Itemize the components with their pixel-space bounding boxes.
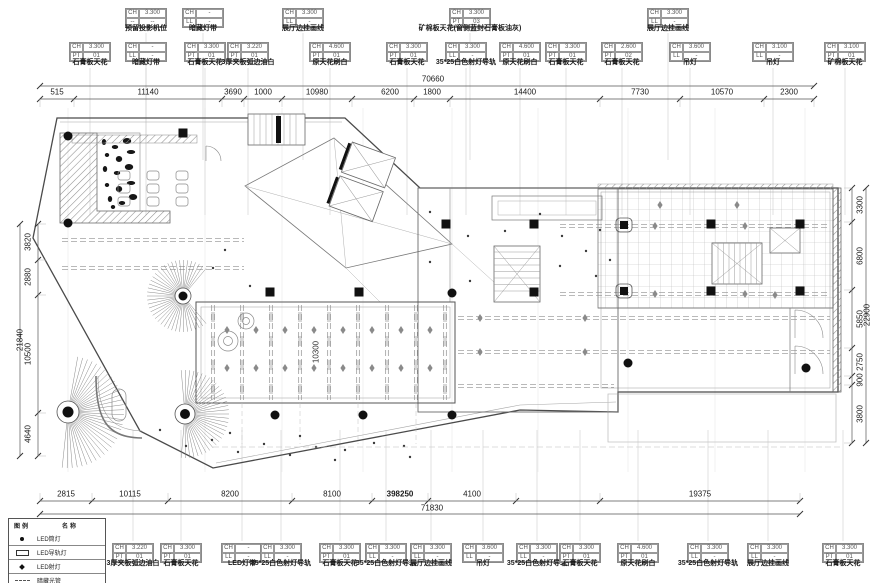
tag-cell: CH <box>748 544 761 553</box>
tag-cell: 3.300 <box>424 544 451 553</box>
tag-cell: CH <box>618 544 631 553</box>
dimension-value: 900 <box>856 373 865 386</box>
tag-cell: LL <box>670 52 683 61</box>
tag-cell: CH <box>823 544 836 553</box>
legend-header-symbol: 图例 <box>9 519 35 532</box>
spot-symbol-icon <box>19 564 25 570</box>
hall-dimension: 10300 <box>312 341 321 363</box>
ceiling-tag: CH3.300LL-35*25白色射灯导轨 <box>445 42 487 62</box>
dimension-value: 6800 <box>856 247 865 265</box>
legend-table: 图例 名称 LED筒灯LED导轨灯LED射灯暗藏光管空调送风口(以机电图纸为准)… <box>8 518 106 583</box>
tag-cell: 3.220 <box>241 43 268 52</box>
ceiling-tag: CH3.300----预留投影机位 <box>125 8 167 28</box>
dimension-value: 10980 <box>306 88 328 97</box>
ceiling-tag: CH3.300LL-展厅边挂画线 <box>747 543 789 563</box>
tag-cell: 3.300 <box>333 544 360 553</box>
tag-label: 石膏板天花 <box>605 59 640 66</box>
ceiling-plan-sheet: CH3.300----预留投影机位CH-LL-暗藏灯带CH3.300LL-展厅边… <box>0 0 878 583</box>
ceiling-tag: CH3.300PT01石膏板天花 <box>69 42 111 62</box>
ceiling-tag: CH-LL-暗藏灯带 <box>125 42 167 62</box>
ceiling-tag: CH3.300LL-35*25白色射灯导轨 <box>260 543 302 563</box>
tag-cell: CH <box>310 43 323 52</box>
tag-cell: CH <box>825 43 838 52</box>
tag-cell: CH <box>70 43 83 52</box>
dimension-value: 10500 <box>24 343 33 365</box>
tag-label: 原天花刷白 <box>313 59 348 66</box>
circle-ceiling-features <box>218 313 254 351</box>
tag-cell: CH <box>185 43 198 52</box>
tag-label: 3厚夹板弧边油白 <box>222 59 275 66</box>
tag-cell: CH <box>222 544 235 553</box>
dimension-value: 3690 <box>224 88 242 97</box>
ceiling-tag: CH3.300PT01石膏板天花 <box>559 543 601 563</box>
dimension-value: 4640 <box>24 425 33 443</box>
tag-cell: CH <box>546 43 559 52</box>
dimension-value: 2880 <box>24 268 33 286</box>
ceiling-tag: CH3.300PT01石膏板天花 <box>386 42 428 62</box>
tag-cell: 3.300 <box>139 9 166 18</box>
tag-cell: LL <box>463 553 476 562</box>
tag-cell: - <box>139 43 166 52</box>
tag-label: 石膏板天花 <box>73 59 108 66</box>
tag-label: 矿棉板天花 <box>828 59 863 66</box>
dim-total-right: 22900 <box>863 304 872 326</box>
tag-cell: 3.300 <box>400 43 427 52</box>
tag-label: 吊灯 <box>476 560 490 567</box>
tag-cell: CH <box>161 544 174 553</box>
tag-cell: 3.600 <box>476 544 503 553</box>
tag-cell: CH <box>261 544 274 553</box>
dimension-value: 8100 <box>323 490 341 499</box>
tag-cell: CH <box>126 9 139 18</box>
tag-cell: 3.300 <box>198 43 225 52</box>
mid-room-partitions <box>418 188 455 302</box>
tag-cell: 3.600 <box>683 43 710 52</box>
curtain-wall-band <box>72 135 197 143</box>
tag-label: 35*25白色射灯导轨 <box>436 59 496 66</box>
tag-cell: 3.300 <box>661 9 688 18</box>
tag-cell: LL <box>753 52 766 61</box>
ceiling-tag: CH4.600PT01原天花刷白 <box>499 42 541 62</box>
ceiling-tag: CH-LL-暗藏灯带 <box>182 8 224 28</box>
tag-cell: 3.300 <box>530 544 557 553</box>
light-cove-inner <box>498 201 596 215</box>
tag-cell: CH <box>446 43 459 52</box>
tag-cell: CH <box>450 9 463 18</box>
tag-cell: CH <box>688 544 701 553</box>
dimension-value: 14400 <box>514 88 536 97</box>
dim-total-bottom: 71830 <box>421 504 443 513</box>
ceiling-tag: CH3.220PT013厚夹板弧边油白 <box>112 543 154 563</box>
right-wing-partitions <box>598 308 833 392</box>
dimension-value: 515 <box>50 88 63 97</box>
tag-cell: 3.300 <box>274 544 301 553</box>
dimension-value: 1000 <box>254 88 272 97</box>
dot-symbol-icon <box>20 537 24 541</box>
tag-cell: CH <box>320 544 333 553</box>
dimension-value: 2300 <box>780 88 798 97</box>
legend-name: LED导轨灯 <box>35 546 105 559</box>
dimension-value: 8200 <box>221 490 239 499</box>
legend-header-name: 名称 <box>35 519 105 532</box>
tag-label: 展厅边挂画线 <box>647 25 689 32</box>
tag-cell: 2.600 <box>615 43 642 52</box>
ceiling-tag: CH3.300LL-展厅边挂画线 <box>647 8 689 28</box>
tag-cell: CH <box>387 43 400 52</box>
tag-label: 展厅边挂画线 <box>747 560 789 567</box>
dimension-value: 3300 <box>856 196 865 214</box>
tag-cell: - <box>235 544 262 553</box>
tag-label: 矿棉板天花(窗侧蓝封石膏板油灰) <box>419 25 522 32</box>
tag-cell: 3.300 <box>296 9 323 18</box>
legend-header: 图例 名称 <box>9 519 105 532</box>
tag-cell: CH <box>113 544 126 553</box>
tag-label: 3厚夹板弧边油白 <box>107 560 160 567</box>
tag-cell: CH <box>602 43 615 52</box>
tag-cell: 3.300 <box>174 544 201 553</box>
tag-label: 石膏板天花 <box>188 59 223 66</box>
track-symbol-icon <box>16 550 29 556</box>
tag-cell: 3.300 <box>836 544 863 553</box>
legend-row: LED筒灯 <box>9 532 105 545</box>
tag-label: 预留投影机位 <box>125 25 167 32</box>
tag-cell: - <box>196 9 223 18</box>
tag-label: 吊灯 <box>766 59 780 66</box>
ceiling-tag: CH3.100PT01矿棉板天花 <box>824 42 866 62</box>
tag-cell: 3.300 <box>559 43 586 52</box>
legend-row: 暗藏光管 <box>9 573 105 583</box>
ceiling-tag: CH3.600LL-吊灯 <box>669 42 711 62</box>
tag-cell: 4.600 <box>323 43 350 52</box>
light-cove <box>492 196 602 220</box>
terrace-outline <box>608 394 836 442</box>
ceiling-tag: CH3.300PT01石膏板天花 <box>545 42 587 62</box>
tag-cell: 4.600 <box>513 43 540 52</box>
tag-label: 暗藏灯带 <box>132 59 160 66</box>
tag-label: 石膏板天花 <box>323 560 358 567</box>
tag-label: 35*25白色射灯导轨 <box>251 560 311 567</box>
dimension-value: 3800 <box>856 405 865 423</box>
tag-cell: 3.300 <box>573 544 600 553</box>
dimension-value: 398250 <box>387 490 414 499</box>
tag-label: 35*25白色射灯导轨 <box>678 560 738 567</box>
plant-symbols <box>102 138 137 209</box>
tag-cell: 3.300 <box>459 43 486 52</box>
dimension-value: 11140 <box>137 88 158 97</box>
tag-cell: 3.300 <box>761 544 788 553</box>
right-wall-hatch <box>833 188 841 392</box>
tag-label: 暗藏灯带 <box>189 25 217 32</box>
ceiling-tag: CH3.300PT01石膏板天花 <box>319 543 361 563</box>
ceiling-tag: CH3.300LL-展厅边挂画线 <box>410 543 452 563</box>
dimension-value: 19375 <box>689 490 711 499</box>
ceiling-tag: CH3.220PT013厚夹板弧边油白 <box>227 42 269 62</box>
tag-cell: CH <box>411 544 424 553</box>
tag-cell: 3.220 <box>126 544 153 553</box>
tag-cell: CH <box>500 43 513 52</box>
ceiling-tag: CH3.300LL-35*25白色射灯导轨 <box>687 543 729 563</box>
dimension-value: 10570 <box>711 88 733 97</box>
top-wall-hatch <box>598 184 833 189</box>
legend-row: LED导轨灯 <box>9 545 105 559</box>
tag-cell: 3.300 <box>83 43 110 52</box>
tag-label: 展厅边挂画线 <box>410 560 452 567</box>
entry-door-arc <box>206 146 221 161</box>
legend-name: LED射灯 <box>35 560 105 573</box>
tag-cell: CH <box>753 43 766 52</box>
tag-label: 展厅边挂画线 <box>282 25 324 32</box>
ceiling-tag: CH3.300LL-35*25白色射灯导轨 <box>516 543 558 563</box>
tag-cell: 3.300 <box>701 544 728 553</box>
tag-label: 石膏板天花 <box>164 560 199 567</box>
ceiling-tag: CH3.300PT01石膏板天花 <box>160 543 202 563</box>
tag-cell: 3.300 <box>463 9 490 18</box>
dimension-value: 2750 <box>856 353 865 371</box>
tag-cell: CH <box>183 9 196 18</box>
ceiling-tag: CH3.100LL-吊灯 <box>752 42 794 62</box>
dimension-value: 7730 <box>631 88 649 97</box>
tag-label: 原天花刷白 <box>621 560 656 567</box>
tag-label: 石膏板天花 <box>563 560 598 567</box>
ceiling-tag: CH2.600PT02石膏板天花 <box>601 42 643 62</box>
dimension-value: 4100 <box>463 490 481 499</box>
furniture-seats <box>118 171 188 206</box>
tag-cell: CH <box>648 9 661 18</box>
tag-cell: CH <box>126 43 139 52</box>
legend-name: 暗藏光管 <box>35 574 105 583</box>
dimension-value: 6200 <box>381 88 399 97</box>
tag-cell: CH <box>283 9 296 18</box>
ceiling-tag: CH4.600PT01原天花刷白 <box>617 543 659 563</box>
legend-name: LED筒灯 <box>35 532 105 545</box>
dimension-value: 2815 <box>57 490 75 499</box>
elevator-core <box>327 141 395 221</box>
dash-symbol-icon <box>15 580 30 581</box>
tag-cell: 4.600 <box>631 544 658 553</box>
tag-label: 吊灯 <box>683 59 697 66</box>
dimension-value: 1800 <box>423 88 441 97</box>
ceiling-tag: CH3.600LL-吊灯 <box>462 543 504 563</box>
ceiling-tag: CH3.300PT01石膏板天花 <box>822 543 864 563</box>
tag-cell: 3.100 <box>766 43 793 52</box>
stair-wall <box>276 116 281 143</box>
tag-cell: CH <box>366 544 379 553</box>
ceiling-tag: CH3.300PT01石膏板天花 <box>184 42 226 62</box>
ceiling-tag: CH4.600PT01原天花刷白 <box>309 42 351 62</box>
tag-label: 石膏板天花 <box>390 59 425 66</box>
legend-row: LED射灯 <box>9 559 105 573</box>
tag-label: 石膏板天花 <box>549 59 584 66</box>
dim-total-left: 21840 <box>16 329 25 351</box>
dimension-value: 10115 <box>119 490 141 499</box>
dim-total-top: 70660 <box>422 75 444 84</box>
tag-cell: CH <box>670 43 683 52</box>
tag-cell: CH <box>560 544 573 553</box>
tag-cell: CH <box>517 544 530 553</box>
fan-ceiling-features <box>57 260 229 468</box>
tag-cell: CH <box>228 43 241 52</box>
tag-label: 35*25白色射灯导轨 <box>356 560 416 567</box>
tag-cell: 3.300 <box>379 544 406 553</box>
tag-label: 石膏板天花 <box>826 560 861 567</box>
dimension-value: 3820 <box>24 233 33 251</box>
tag-cell: CH <box>463 544 476 553</box>
ceiling-tag: CH3.300LL-35*25白色射灯导轨 <box>365 543 407 563</box>
ceiling-tag: CH3.300PT03矿棉板天花(窗侧蓝封石膏板油灰) <box>449 8 491 28</box>
tag-label: 原天花刷白 <box>503 59 538 66</box>
tag-cell: 3.100 <box>838 43 865 52</box>
ceiling-tag: CH3.300LL-展厅边挂画线 <box>282 8 324 28</box>
